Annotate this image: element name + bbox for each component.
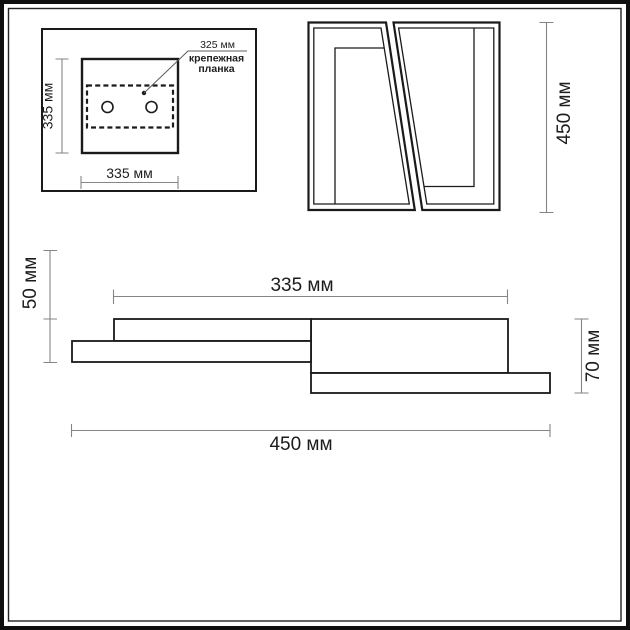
side-left-ledge xyxy=(72,341,311,362)
side-view-left-height-dim-line xyxy=(44,251,58,363)
mounting-hole-right xyxy=(146,102,157,113)
front-view: 450 мм xyxy=(309,23,576,213)
front-view-height-dim-line xyxy=(540,23,554,213)
plate-name-line2: планка xyxy=(198,63,234,75)
top-view-height-dim-label: 335 мм xyxy=(40,83,56,130)
side-right-ledge xyxy=(311,373,550,393)
mounting-hole-left xyxy=(102,102,113,113)
side-left-body xyxy=(114,319,311,341)
side-view-right-height-dim-label: 70 мм xyxy=(583,330,604,383)
side-view: 50 мм 335 мм 70 мм 450 мм xyxy=(20,251,604,456)
dimension-drawing-canvas: 325 мм крепежная планка 335 мм 335 мм 45… xyxy=(0,0,630,630)
side-view-left-height-dim-label: 50 мм xyxy=(20,257,41,310)
technical-drawing-page: 325 мм крепежная планка 335 мм 335 мм 45… xyxy=(0,0,630,630)
side-view-top-width-dim-label: 335 мм xyxy=(270,275,333,296)
mounting-view: 325 мм крепежная планка 335 мм 335 мм xyxy=(40,29,257,191)
side-right-body xyxy=(311,319,508,373)
plate-width-label: 325 мм xyxy=(200,39,235,51)
side-view-total-width-dim-label: 450 мм xyxy=(269,434,332,455)
front-view-height-dim-label: 450 мм xyxy=(554,81,575,144)
top-view-width-dim-label: 335 мм xyxy=(106,165,153,181)
lamp-base-square xyxy=(82,59,178,153)
